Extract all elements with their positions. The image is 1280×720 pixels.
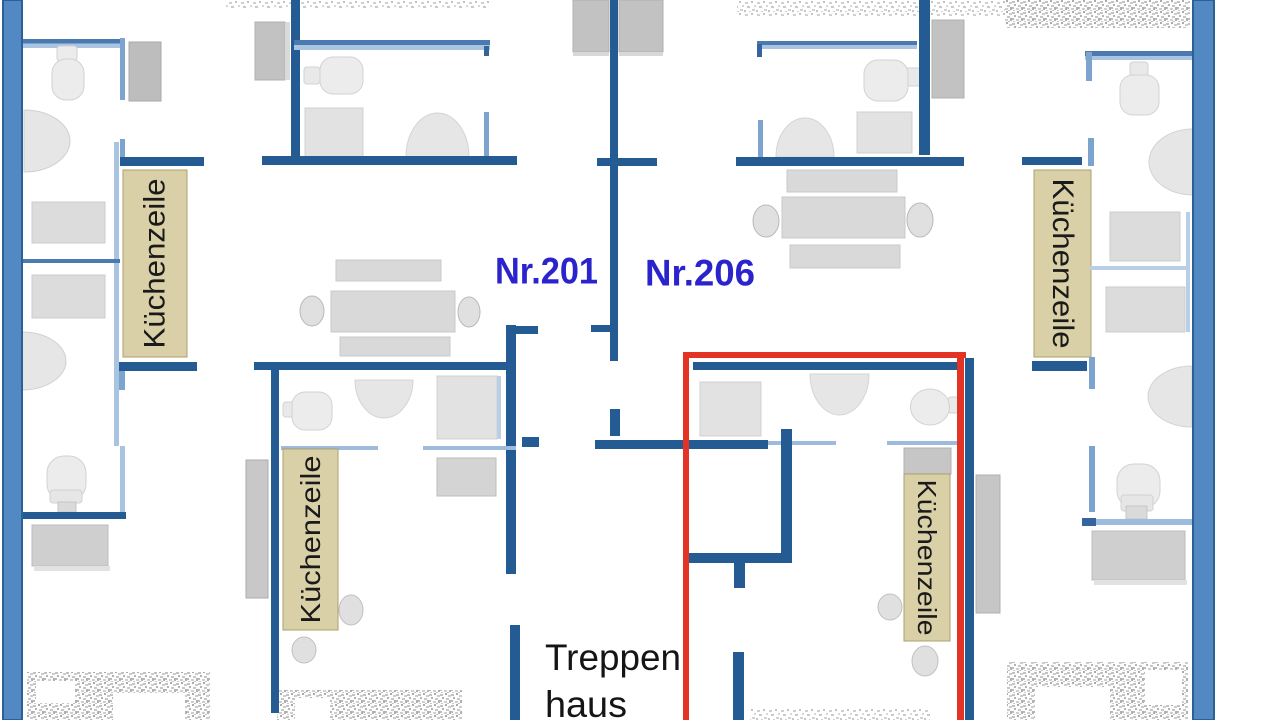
- svg-text:haus: haus: [545, 684, 627, 720]
- svg-text:Treppen: Treppen: [545, 637, 681, 678]
- svg-text:Küchenzeile: Küchenzeile: [912, 480, 942, 636]
- svg-text:Küchenzeile: Küchenzeile: [1046, 179, 1079, 349]
- svg-text:Nr.206: Nr.206: [645, 253, 755, 294]
- svg-text:Küchenzeile: Küchenzeile: [295, 456, 326, 624]
- svg-text:Nr.201: Nr.201: [495, 251, 598, 292]
- svg-text:Küchenzeile: Küchenzeile: [139, 179, 172, 349]
